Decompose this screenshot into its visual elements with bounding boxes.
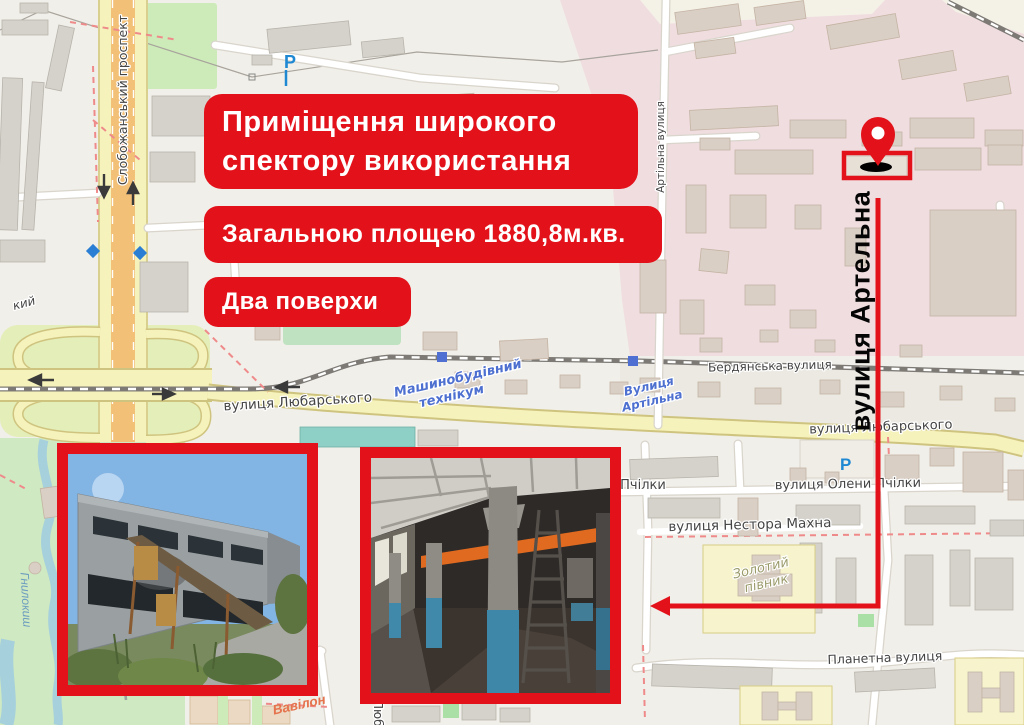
title-line-2: спектору використання	[222, 142, 620, 181]
area-text: Загальною площею 1880,8м.кв.	[222, 220, 644, 249]
label-pchilky-fragment: Пчілки	[620, 478, 666, 493]
yellow-court-1	[740, 686, 832, 725]
exterior-photo-art	[68, 454, 307, 685]
listing-flyer: P P Слобожанський проспект Артільна вули…	[0, 0, 1024, 725]
station-marker	[437, 352, 447, 362]
label-oleny-pchilky: вулиця Олени Пчілки	[775, 476, 921, 494]
station-marker	[628, 356, 638, 366]
exterior-photo	[57, 443, 318, 696]
label-hnylokysh: Гнилокиш	[18, 572, 35, 628]
yellow-court-2	[955, 658, 1024, 725]
interior-photo	[360, 447, 621, 704]
title-banner: Приміщення широкого спектору використанн…	[204, 94, 638, 189]
area-banner: Загальною площею 1880,8м.кв.	[204, 206, 662, 263]
floors-banner: Два поверхи	[204, 277, 411, 327]
svg-text:P: P	[284, 52, 296, 72]
street-callout: вулиця Артельна	[846, 191, 877, 432]
label-artilna-road: Артільна вулиця	[655, 101, 667, 193]
label-slobozhansky: Слобожанський проспект	[115, 15, 130, 185]
floors-text: Два поверхи	[222, 288, 393, 316]
interior-photo-art	[371, 458, 610, 693]
title-line-1: Приміщення широкого	[222, 103, 620, 142]
highlighted-building	[845, 156, 907, 176]
parking-icon-south: P	[840, 455, 851, 474]
